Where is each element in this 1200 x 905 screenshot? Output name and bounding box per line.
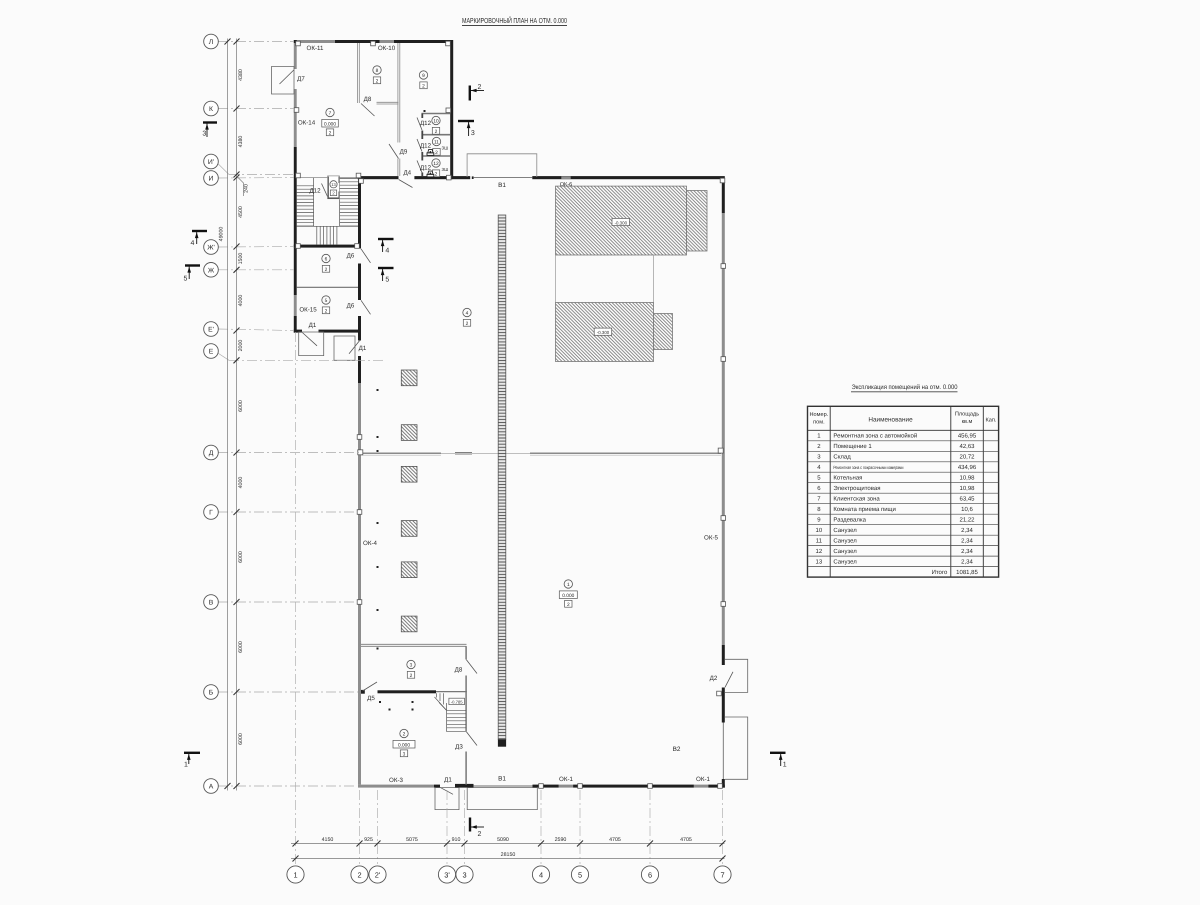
svg-text:Д9: Д9 [400, 149, 408, 156]
svg-text:ОК-10: ОК-10 [378, 45, 396, 52]
svg-text:Санузел: Санузел [833, 548, 857, 555]
svg-text:4705: 4705 [680, 837, 692, 843]
svg-text:Наименование: Наименование [868, 417, 913, 424]
svg-text:10,98: 10,98 [959, 475, 975, 482]
svg-text:2,34: 2,34 [961, 548, 973, 555]
svg-text:Д: Д [209, 450, 214, 457]
svg-text:49000: 49000 [219, 227, 225, 242]
svg-text:Е': Е' [208, 327, 214, 334]
svg-text:13: 13 [816, 559, 823, 566]
svg-text:кв.м: кв.м [962, 419, 973, 425]
svg-text:3: 3 [462, 870, 466, 879]
svg-text:5: 5 [184, 276, 188, 283]
svg-text:ОК-1: ОК-1 [559, 776, 573, 783]
svg-text:2: 2 [329, 130, 332, 136]
svg-text:1: 1 [293, 870, 297, 879]
svg-text:8: 8 [376, 68, 379, 74]
svg-text:12: 12 [816, 548, 823, 555]
svg-text:Д6: Д6 [347, 303, 355, 310]
svg-text:В2: В2 [673, 746, 681, 753]
svg-text:В1: В1 [498, 182, 506, 189]
svg-text:42,63: 42,63 [959, 443, 975, 450]
svg-text:2': 2' [375, 870, 381, 879]
svg-text:6000: 6000 [238, 551, 244, 563]
svg-text:Склад: Склад [833, 454, 851, 461]
svg-text:5090: 5090 [497, 837, 509, 843]
svg-text:ОК-6: ОК-6 [560, 182, 573, 188]
svg-text:Ремонтная зона с автомойкой: Ремонтная зона с автомойкой [833, 433, 917, 440]
svg-text:2: 2 [422, 83, 425, 89]
svg-text:И: И [209, 176, 214, 183]
svg-text:2: 2 [435, 171, 438, 177]
svg-text:ОК-3: ОК-3 [389, 777, 403, 784]
svg-text:Итого: Итого [932, 569, 948, 576]
svg-text:2: 2 [325, 267, 328, 273]
svg-text:10: 10 [433, 118, 439, 124]
svg-text:Д5: Д5 [367, 695, 375, 702]
svg-text:Раздевалка: Раздевалка [833, 517, 866, 524]
svg-text:7: 7 [720, 870, 724, 879]
svg-text:Д4: Д4 [403, 169, 411, 176]
svg-text:6000: 6000 [238, 733, 244, 745]
svg-text:4150: 4150 [322, 837, 334, 843]
svg-text:2: 2 [466, 321, 469, 327]
svg-text:6000: 6000 [238, 641, 244, 653]
svg-text:пом.: пом. [813, 420, 825, 426]
svg-text:ЗШ: ЗШ [442, 145, 449, 150]
svg-text:0.000: 0.000 [398, 743, 410, 749]
svg-text:4705: 4705 [609, 837, 621, 843]
svg-text:2: 2 [435, 129, 438, 135]
svg-text:7: 7 [329, 110, 332, 116]
svg-text:-0.785: -0.785 [451, 699, 464, 704]
svg-text:3': 3' [444, 870, 450, 879]
svg-text:Кап.: Кап. [986, 418, 997, 424]
svg-text:В1: В1 [498, 776, 506, 783]
svg-text:2: 2 [376, 78, 379, 84]
svg-text:4: 4 [385, 248, 389, 255]
svg-text:5075: 5075 [406, 837, 418, 843]
svg-text:Клиентская зона: Клиентская зона [833, 496, 880, 503]
svg-text:ОК-5: ОК-5 [704, 535, 718, 542]
svg-text:Д12: Д12 [420, 120, 432, 127]
svg-text:Д1: Д1 [444, 777, 452, 784]
svg-text:4: 4 [466, 310, 469, 316]
svg-text:Б: Б [209, 690, 214, 697]
svg-text:11: 11 [434, 139, 439, 145]
svg-text:К: К [209, 106, 213, 113]
svg-text:Д12: Д12 [420, 164, 432, 171]
svg-text:Санузел: Санузел [833, 538, 857, 545]
svg-text:2,34: 2,34 [961, 538, 973, 545]
svg-text:3: 3 [471, 130, 475, 137]
svg-text:20,72: 20,72 [959, 454, 975, 461]
svg-text:А: А [209, 784, 214, 791]
svg-text:3: 3 [202, 130, 206, 137]
svg-text:12: 12 [433, 161, 439, 167]
svg-text:Санузел: Санузел [833, 527, 857, 534]
svg-text:Д2: Д2 [710, 675, 718, 682]
svg-text:4380: 4380 [238, 136, 244, 148]
svg-text:910: 910 [452, 837, 461, 843]
svg-text:Д7: Д7 [297, 75, 305, 82]
svg-text:В: В [209, 600, 214, 607]
svg-text:ОК-15: ОК-15 [299, 306, 317, 313]
svg-text:3: 3 [410, 662, 413, 668]
svg-text:Г: Г [209, 510, 213, 517]
svg-text:Номер.: Номер. [810, 412, 829, 418]
svg-text:Е: Е [209, 349, 214, 356]
svg-text:10,6: 10,6 [961, 506, 973, 513]
svg-text:-0.300: -0.300 [597, 330, 610, 335]
svg-text:5: 5 [385, 277, 389, 284]
svg-text:2: 2 [410, 673, 413, 679]
svg-text:11: 11 [816, 538, 823, 545]
svg-text:Д8: Д8 [455, 666, 463, 673]
svg-text:Д1: Д1 [359, 345, 367, 352]
svg-text:И': И' [208, 159, 214, 166]
svg-text:Ремонтная зона с покрасочными: Ремонтная зона с покрасочными камерами [833, 465, 903, 470]
svg-text:Санузел: Санузел [833, 559, 857, 566]
svg-text:2: 2 [325, 308, 328, 314]
svg-text:1: 1 [567, 582, 570, 588]
svg-text:1081,85: 1081,85 [956, 569, 978, 576]
svg-text:21,22: 21,22 [959, 517, 975, 524]
svg-text:9: 9 [422, 73, 425, 79]
svg-text:Д12: Д12 [420, 143, 432, 150]
svg-text:2: 2 [567, 602, 570, 608]
svg-text:0.000: 0.000 [324, 122, 336, 128]
svg-text:3: 3 [403, 751, 406, 757]
svg-text:63,45: 63,45 [959, 496, 975, 503]
svg-text:Д12: Д12 [309, 187, 321, 194]
svg-text:1: 1 [783, 762, 787, 769]
svg-text:Площадь: Площадь [955, 412, 979, 418]
svg-text:6: 6 [648, 870, 652, 879]
svg-text:Помещение 1: Помещение 1 [833, 443, 872, 450]
svg-text:28150: 28150 [501, 852, 516, 858]
svg-text:6: 6 [325, 256, 328, 262]
svg-text:2: 2 [357, 870, 361, 879]
svg-text:0.000: 0.000 [562, 593, 574, 599]
svg-text:2: 2 [478, 831, 482, 838]
svg-text:2000: 2000 [238, 340, 244, 352]
svg-text:Д1: Д1 [309, 322, 317, 329]
svg-text:Д8: Д8 [364, 96, 372, 103]
svg-text:2,34: 2,34 [961, 559, 973, 566]
svg-text:Ж': Ж' [207, 245, 215, 252]
svg-text:4: 4 [539, 870, 543, 879]
svg-text:925: 925 [364, 837, 373, 843]
svg-text:2: 2 [403, 731, 406, 737]
svg-text:434,96: 434,96 [958, 464, 977, 471]
svg-text:1: 1 [184, 762, 188, 769]
svg-text:4500: 4500 [238, 206, 244, 218]
svg-text:-0.300: -0.300 [615, 220, 628, 225]
svg-text:5: 5 [578, 870, 582, 879]
svg-text:Экспликация помещений на отм.: Экспликация помещений на отм. 0.000 [852, 384, 958, 391]
svg-text:5: 5 [325, 298, 328, 304]
svg-text:2: 2 [478, 84, 482, 91]
svg-text:ОК-4: ОК-4 [363, 540, 377, 547]
svg-text:6000: 6000 [238, 400, 244, 412]
svg-text:13: 13 [331, 182, 336, 187]
svg-text:Комната приема пищи: Комната приема пищи [833, 506, 895, 513]
svg-text:Д3: Д3 [455, 743, 463, 750]
svg-text:Д6: Д6 [347, 252, 355, 259]
svg-text:2: 2 [435, 150, 438, 156]
svg-text:10: 10 [816, 527, 823, 534]
svg-text:4000: 4000 [238, 477, 244, 489]
svg-text:10,98: 10,98 [959, 485, 975, 492]
svg-text:ОК-1: ОК-1 [696, 776, 710, 783]
svg-text:ЗШ: ЗШ [442, 167, 449, 172]
svg-text:4380: 4380 [238, 69, 244, 81]
svg-text:4000: 4000 [238, 295, 244, 307]
svg-text:ОК-14: ОК-14 [298, 119, 316, 126]
svg-text:2,34: 2,34 [961, 527, 973, 534]
svg-text:Электрощитовая: Электрощитовая [833, 485, 880, 492]
svg-text:4: 4 [191, 240, 195, 247]
svg-text:Л: Л [209, 39, 213, 46]
svg-text:Ж: Ж [208, 267, 215, 274]
svg-text:456,95: 456,95 [958, 433, 977, 440]
svg-text:МАРКИРОВОЧНЫЙ ПЛАН НА ОТМ. 0.0: МАРКИРОВОЧНЫЙ ПЛАН НА ОТМ. 0.000 [462, 16, 567, 25]
svg-text:Котельная: Котельная [833, 475, 862, 482]
svg-text:1500: 1500 [238, 253, 244, 265]
svg-text:ОК-11: ОК-11 [307, 45, 324, 52]
svg-text:240: 240 [244, 184, 250, 193]
svg-text:2590: 2590 [555, 837, 567, 843]
